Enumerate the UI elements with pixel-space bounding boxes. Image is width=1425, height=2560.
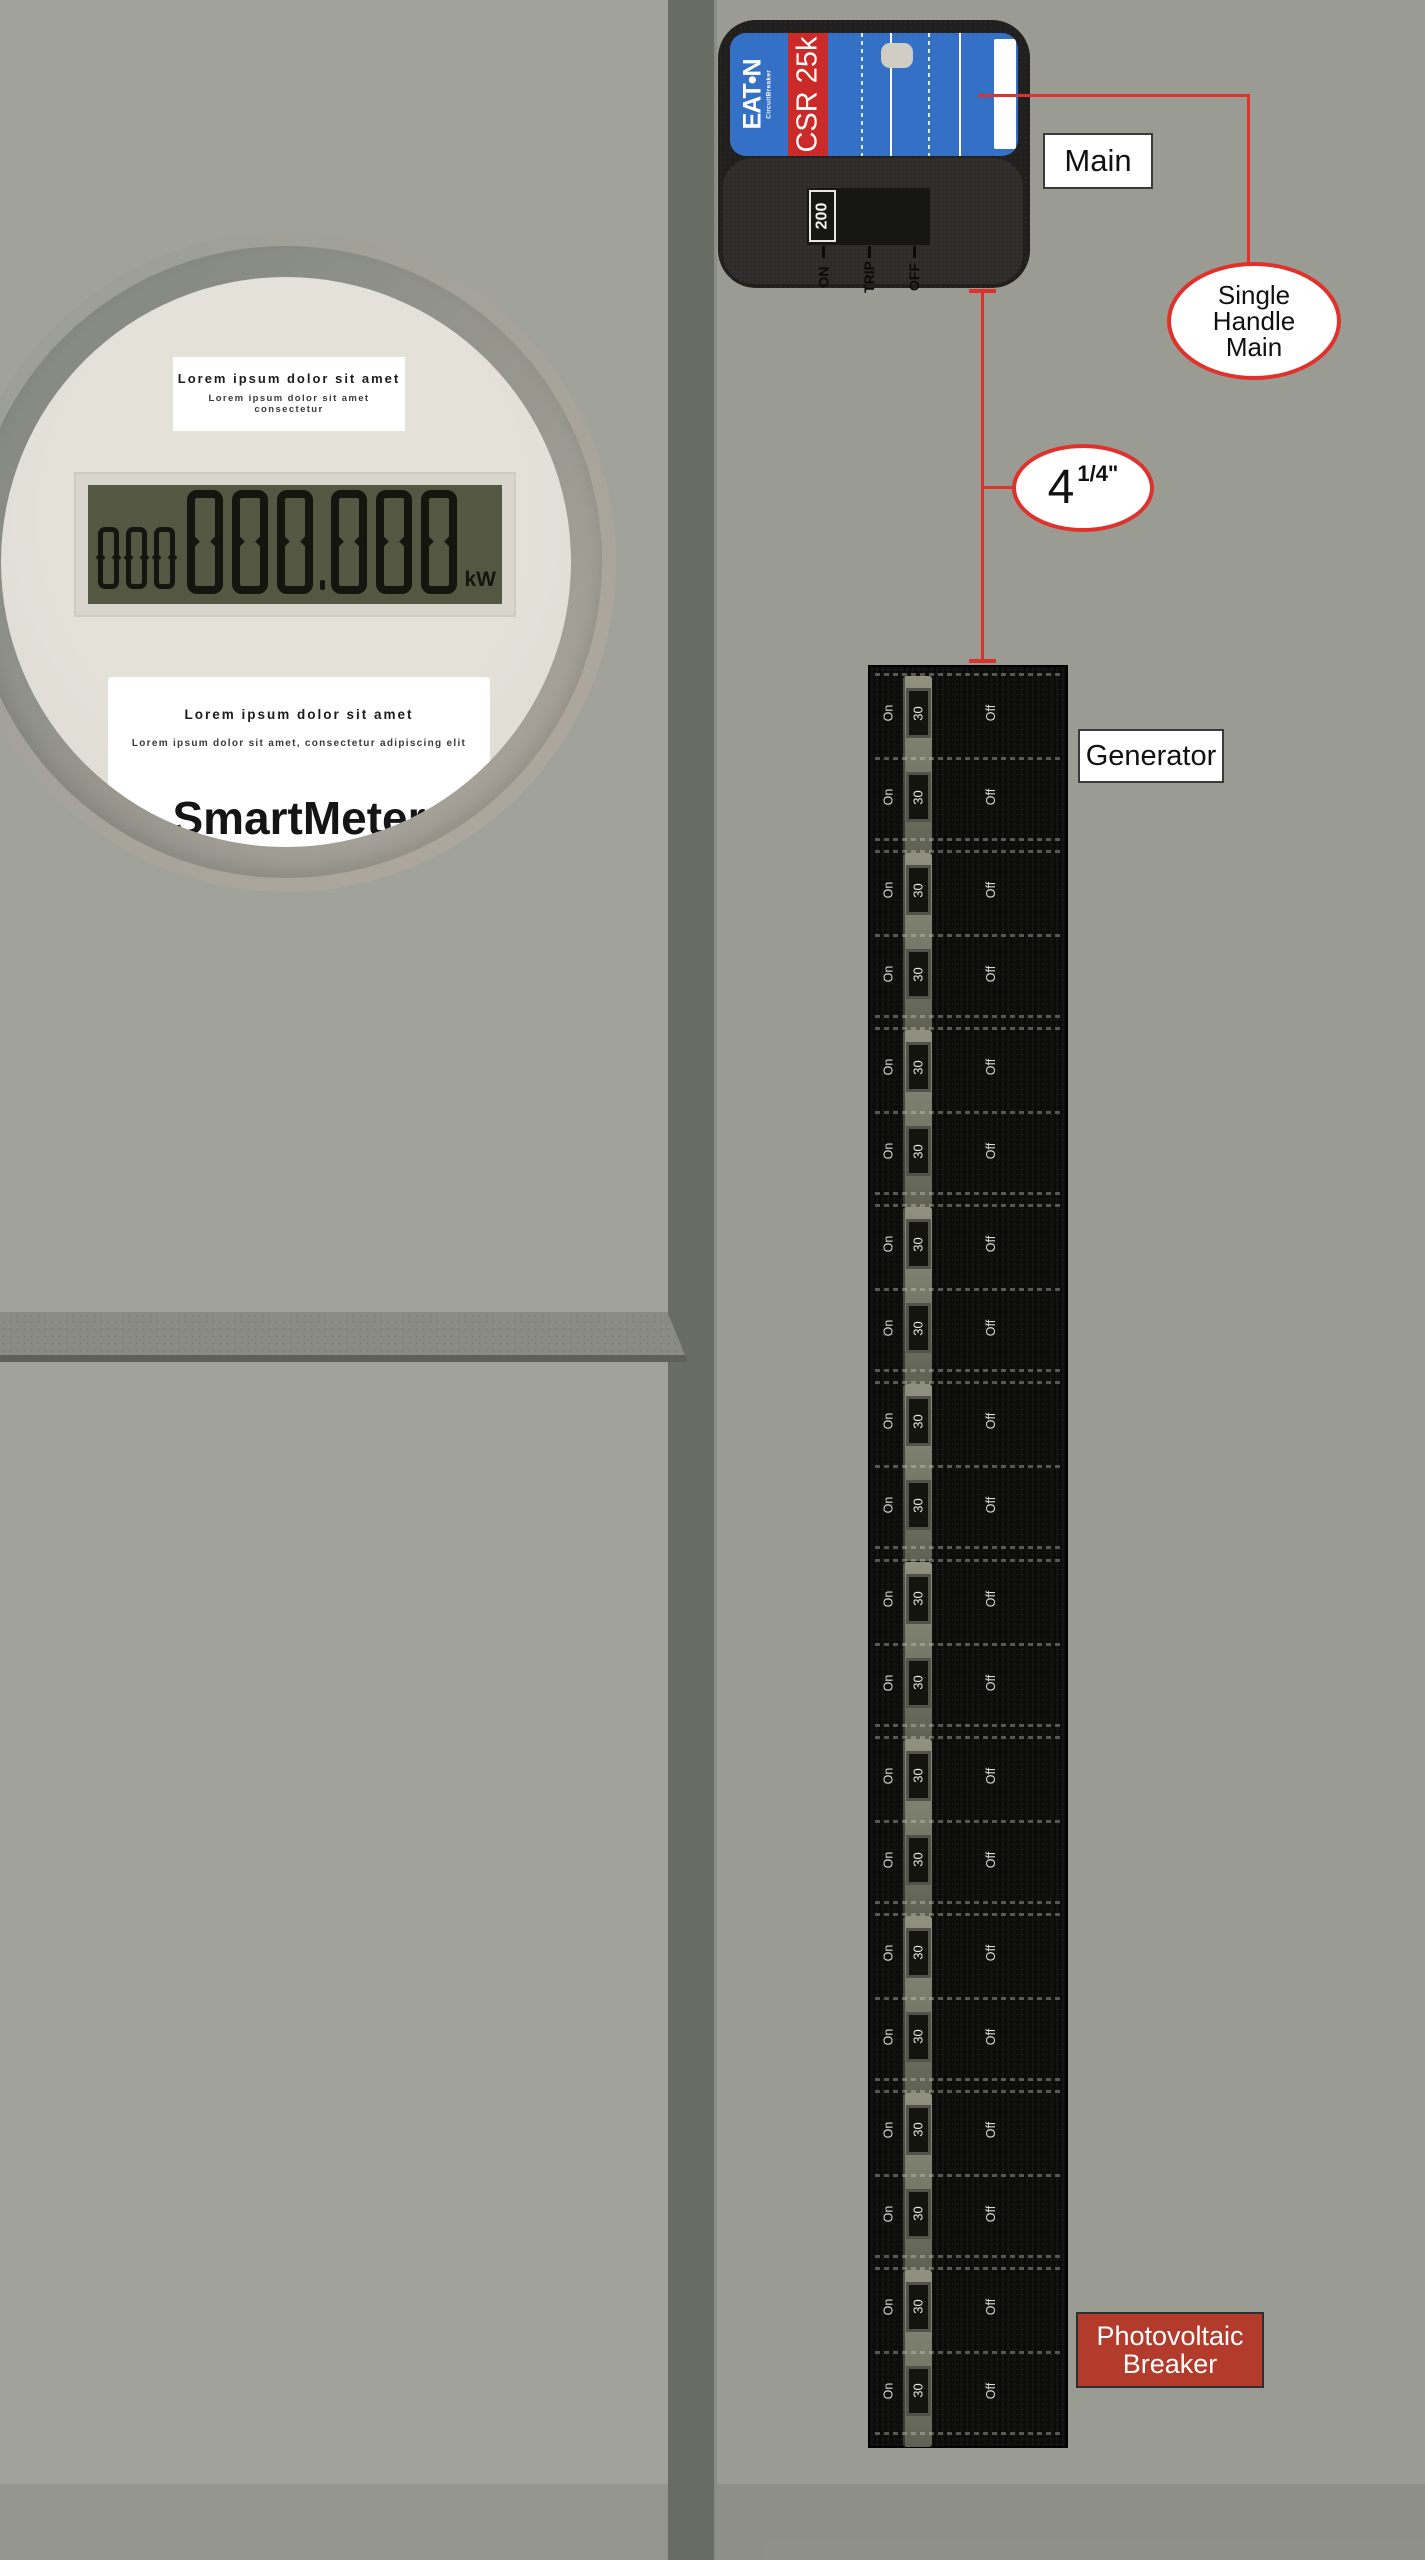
breaker-switch-handle[interactable]: 30 — [906, 2366, 931, 2416]
breaker-on-label: On — [878, 2267, 898, 2347]
dimension-value: 4 — [1048, 464, 1075, 512]
breaker-off-label-text: Off — [984, 1674, 998, 1690]
position-label-off: OFF — [902, 260, 926, 294]
breaker-switch-handle-text: 30 — [911, 1945, 926, 1959]
lcd-big-digit — [376, 490, 412, 594]
breaker-divider-line — [875, 1381, 1061, 1384]
breaker-off-label-text: Off — [984, 1767, 998, 1783]
breaker-switch-handle-text: 30 — [911, 1591, 926, 1605]
model-stripe: CSR 25k — [788, 33, 828, 156]
breaker-on-label: On — [878, 1111, 898, 1191]
breaker-on-label: On — [878, 1913, 898, 1993]
amp-rating-value: 200 — [814, 203, 832, 230]
meter-lcd-display: kW — [88, 485, 502, 604]
breaker-divider-line — [875, 673, 1061, 676]
breaker-off-label: Off — [976, 934, 1006, 1014]
breaker-on-label-text: On — [881, 1143, 895, 1160]
breaker-divider-line — [875, 757, 1061, 760]
breaker-row: On30Off — [872, 1820, 1064, 1900]
breaker-off-label: Off — [976, 1997, 1006, 2077]
breaker-switch-handle[interactable]: 30 — [906, 1126, 931, 1176]
breaker-switch-handle[interactable]: 30 — [906, 1396, 931, 1446]
breaker-off-label: Off — [976, 1913, 1006, 1993]
breaker-off-label: Off — [976, 1381, 1006, 1461]
dimension-line — [981, 292, 984, 663]
position-tick-on — [822, 246, 825, 258]
breaker-switch-handle[interactable]: 30 — [906, 1751, 931, 1801]
breaker-switch-handle[interactable]: 30 — [906, 1574, 931, 1624]
breaker-off-label-text: Off — [984, 1851, 998, 1867]
breaker-on-label: On — [878, 850, 898, 930]
breaker-on-label: On — [878, 1820, 898, 1900]
model-number: CSR 25k — [792, 36, 825, 152]
breaker-on-label-text: On — [881, 789, 895, 806]
breaker-off-label: Off — [976, 1736, 1006, 1816]
breaker-divider-line — [875, 1820, 1061, 1823]
breaker-row: On30Off — [872, 2351, 1064, 2431]
breaker-off-label: Off — [976, 1111, 1006, 1191]
breaker-group: On30OffOn30Off — [872, 1913, 1064, 2081]
breaker-off-label-text: Off — [984, 1059, 998, 1075]
single-handle-main-callout: Single Handle Main — [1167, 262, 1341, 380]
breaker-group: On30OffOn30Off — [872, 850, 1064, 1018]
breaker-group: On30OffOn30Off — [872, 1027, 1064, 1195]
lcd-big-digit — [331, 490, 367, 594]
breaker-off-label: Off — [976, 1288, 1006, 1368]
breaker-divider-line — [875, 1204, 1061, 1207]
breaker-divider-line — [875, 850, 1061, 853]
dimension-fraction: 1/4" — [1077, 461, 1118, 487]
breaker-switch-handle[interactable]: 30 — [906, 1303, 931, 1353]
breaker-switch-handle[interactable]: 30 — [906, 949, 931, 999]
breaker-row: On30Off — [872, 1559, 1064, 1639]
breaker-off-label-text: Off — [984, 1413, 998, 1429]
breaker-on-label-text: On — [881, 705, 895, 722]
breaker-on-label: On — [878, 673, 898, 753]
label-divider-line — [861, 33, 863, 156]
breaker-off-label: Off — [976, 1820, 1006, 1900]
breaker-off-label: Off — [976, 757, 1006, 837]
breaker-group: On30OffOn30Off — [872, 2267, 1064, 2435]
meter-bottom-label: Lorem ipsum dolor sit amet Lorem ipsum d… — [108, 677, 490, 847]
breaker-switch-handle[interactable]: 30 — [906, 772, 931, 822]
breaker-group: On30OffOn30Off — [872, 2090, 1064, 2258]
breaker-on-label-text: On — [881, 1674, 895, 1691]
breaker-off-label-text: Off — [984, 2122, 998, 2138]
dimension-connector — [983, 486, 1014, 489]
breaker-on-label: On — [878, 1204, 898, 1284]
breaker-switch-handle[interactable]: 30 — [906, 2189, 931, 2239]
breaker-off-label: Off — [976, 2090, 1006, 2170]
breaker-on-label-text: On — [881, 1059, 895, 1076]
breaker-on-label-text: On — [881, 1851, 895, 1868]
position-label-trip: TRIP — [857, 260, 881, 294]
breaker-on-label: On — [878, 2351, 898, 2431]
breaker-on-label-text: On — [881, 966, 895, 983]
callout-line-main-vertical — [1247, 94, 1250, 264]
breaker-off-label-text: Off — [984, 1590, 998, 1606]
breaker-on-label-text: On — [881, 2205, 895, 2222]
breaker-off-label: Off — [976, 1204, 1006, 1284]
breaker-off-label: Off — [976, 850, 1006, 930]
breaker-group-bottom-line — [875, 2432, 1061, 2435]
breaker-switch-handle-text: 30 — [911, 2029, 926, 2043]
breaker-off-label-text: Off — [984, 1944, 998, 1960]
breaker-switch-handle-text: 30 — [911, 1675, 926, 1689]
breaker-on-label-text: On — [881, 1320, 895, 1337]
position-label-on: ON — [811, 260, 835, 294]
breaker-off-label-text: Off — [984, 2206, 998, 2222]
dimension-callout: 4 1/4" — [1012, 444, 1154, 532]
breaker-off-label-text: Off — [984, 2383, 998, 2399]
breaker-divider-line — [875, 2174, 1061, 2177]
breaker-on-label-text: On — [881, 2299, 895, 2316]
breaker-group-bottom-line — [875, 1724, 1061, 1727]
breaker-switch-handle-text: 30 — [911, 1852, 926, 1866]
breaker-divider-line — [875, 1643, 1061, 1646]
breaker-switch-handle-text: 30 — [911, 967, 926, 981]
breaker-switch-handle[interactable]: 30 — [906, 2012, 931, 2062]
lcd-decimal-point — [320, 580, 326, 590]
breaker-group-bottom-line — [875, 1901, 1061, 1904]
breaker-switch-handle-text: 30 — [911, 2123, 926, 2137]
breaker-switch-handle-text: 30 — [911, 883, 926, 897]
breaker-switch-handle[interactable]: 30 — [906, 1480, 931, 1530]
breaker-switch-handle[interactable]: 30 — [906, 865, 931, 915]
breaker-on-label-text: On — [881, 2383, 895, 2400]
breaker-group-bottom-line — [875, 1369, 1061, 1372]
breaker-off-label: Off — [976, 2174, 1006, 2254]
breaker-off-label-text: Off — [984, 705, 998, 721]
breaker-off-label-text: Off — [984, 882, 998, 898]
lcd-big-digit — [232, 490, 268, 594]
breaker-on-label: On — [878, 2174, 898, 2254]
breaker-off-label: Off — [976, 673, 1006, 753]
breaker-off-label-text: Off — [984, 966, 998, 982]
breaker-row: On30Off — [872, 934, 1064, 1014]
lcd-big-digit — [277, 490, 313, 594]
breaker-on-label: On — [878, 1465, 898, 1545]
breaker-group-bottom-line — [875, 2078, 1061, 2081]
breaker-on-label: On — [878, 1643, 898, 1723]
breaker-on-label-text: On — [881, 2121, 895, 2138]
label-divider-line — [959, 33, 961, 156]
breaker-divider-line — [875, 1559, 1061, 1562]
meter-brand: SmartMeter — [108, 791, 490, 845]
breaker-row: On30Off — [872, 673, 1064, 753]
breaker-divider-line — [875, 2351, 1061, 2354]
breaker-switch-handle-text: 30 — [911, 2207, 926, 2221]
breaker-divider-line — [875, 1913, 1061, 1916]
dimension-tick-top — [969, 289, 996, 293]
breaker-row: On30Off — [872, 1381, 1064, 1461]
breaker-switch-handle-text: 30 — [911, 1321, 926, 1335]
breaker-switch-handle[interactable]: 30 — [906, 2282, 931, 2332]
breaker-row: On30Off — [872, 1997, 1064, 2077]
breaker-switch-handle[interactable]: 30 — [906, 1219, 931, 1269]
breaker-on-label-text: On — [881, 882, 895, 899]
breaker-off-label-text: Off — [984, 789, 998, 805]
breaker-switch-handle[interactable]: 30 — [906, 688, 931, 738]
breaker-row: On30Off — [872, 2174, 1064, 2254]
breaker-divider-line — [875, 2267, 1061, 2270]
eaton-logo: EAT•N CircuitBreaker — [730, 33, 784, 156]
breaker-divider-line — [875, 1736, 1061, 1739]
breaker-indicator-window — [881, 43, 913, 68]
breaker-off-label-text: Off — [984, 1143, 998, 1159]
breaker-row: On30Off — [872, 1465, 1064, 1545]
eaton-logo-text: EAT•N — [741, 60, 766, 130]
breaker-on-label: On — [878, 1559, 898, 1639]
photovoltaic-breaker-label: Photovoltaic Breaker — [1076, 2312, 1264, 2388]
position-tick-trip — [868, 246, 871, 258]
meter-lcd-frame: kW — [74, 472, 516, 617]
breaker-on-label-text: On — [881, 1767, 895, 1784]
lcd-small-digit — [126, 527, 147, 589]
wall-shelf-trim — [0, 1312, 688, 1362]
breaker-group: On30OffOn30Off — [872, 673, 1064, 841]
breaker-divider-line — [875, 1111, 1061, 1114]
generator-label: Generator — [1078, 729, 1224, 783]
breaker-row: On30Off — [872, 1027, 1064, 1107]
breaker-on-label: On — [878, 1027, 898, 1107]
breaker-divider-line — [875, 934, 1061, 937]
wall-corner-stripe — [668, 0, 717, 2560]
breaker-switch-handle-text: 30 — [911, 790, 926, 804]
breaker-row: On30Off — [872, 850, 1064, 930]
breaker-group: On30OffOn30Off — [872, 1381, 1064, 1549]
breaker-row: On30Off — [872, 1913, 1064, 1993]
meter-top-label-line1: Lorem ipsum dolor sit amet — [173, 371, 405, 386]
breaker-on-label: On — [878, 757, 898, 837]
breaker-off-label: Off — [976, 1643, 1006, 1723]
lcd-small-digit — [98, 527, 119, 589]
breaker-switch-handle[interactable]: 30 — [906, 1928, 931, 1978]
breaker-row: On30Off — [872, 2267, 1064, 2347]
breaker-switch-handle-text: 30 — [911, 1498, 926, 1512]
amp-rating-box: 200 — [809, 190, 836, 242]
breaker-switch-handle[interactable]: 30 — [906, 2105, 931, 2155]
breaker-switch-handle-text: 30 — [911, 2384, 926, 2398]
breaker-row: On30Off — [872, 757, 1064, 837]
breaker-on-label-text: On — [881, 1944, 895, 1961]
breaker-divider-line — [875, 1997, 1061, 2000]
breaker-divider-line — [875, 1288, 1061, 1291]
breaker-group-bottom-line — [875, 1015, 1061, 1018]
breaker-row: On30Off — [872, 1736, 1064, 1816]
breaker-on-label-text: On — [881, 1497, 895, 1514]
breaker-on-label: On — [878, 1381, 898, 1461]
breaker-divider-line — [875, 1027, 1061, 1030]
main-breaker: EAT•N CircuitBreaker CSR 25k 200 ON TRIP… — [718, 20, 1030, 288]
breaker-on-label-text: On — [881, 1236, 895, 1253]
meter-top-label: Lorem ipsum dolor sit amet Lorem ipsum d… — [173, 357, 405, 431]
breaker-row: On30Off — [872, 1204, 1064, 1284]
breaker-off-label-text: Off — [984, 2299, 998, 2315]
breaker-off-label: Off — [976, 2351, 1006, 2431]
breaker-row: On30Off — [872, 1111, 1064, 1191]
breaker-group-bottom-line — [875, 1192, 1061, 1195]
breaker-off-label-text: Off — [984, 1320, 998, 1336]
breaker-group: On30OffOn30Off — [872, 1736, 1064, 1904]
breaker-off-label: Off — [976, 1027, 1006, 1107]
breaker-off-label-text: Off — [984, 1497, 998, 1513]
breaker-on-label: On — [878, 934, 898, 1014]
label-divider-line — [928, 33, 930, 156]
breaker-row: On30Off — [872, 1288, 1064, 1368]
breaker-group: On30OffOn30Off — [872, 1559, 1064, 1727]
meter-top-label-line2: Lorem ipsum dolor sit amet consectetur — [173, 393, 405, 415]
breaker-switch-handle[interactable]: 30 — [906, 1835, 931, 1885]
breaker-group-bottom-line — [875, 1546, 1061, 1549]
dimension-tick-bottom — [969, 659, 996, 663]
meter-lcd-unit: kW — [464, 568, 496, 592]
breaker-switch-handle-text: 30 — [911, 2300, 926, 2314]
breaker-off-label: Off — [976, 2267, 1006, 2347]
breaker-switch-handle-text: 30 — [911, 1414, 926, 1428]
lcd-big-digit — [187, 490, 223, 594]
breaker-switch-handle-text: 30 — [911, 1060, 926, 1074]
lcd-small-digit — [154, 527, 175, 589]
breaker-on-label-text: On — [881, 2028, 895, 2045]
breaker-off-label: Off — [976, 1559, 1006, 1639]
meter-bottom-label-line1: Lorem ipsum dolor sit amet — [108, 707, 490, 722]
breaker-off-label-text: Off — [984, 2028, 998, 2044]
position-tick-off — [913, 246, 916, 258]
breaker-on-label: On — [878, 1736, 898, 1816]
breaker-on-label-text: On — [881, 1590, 895, 1607]
main-breaker-label-face: EAT•N CircuitBreaker CSR 25k — [730, 33, 1018, 156]
lcd-big-digit — [421, 490, 457, 594]
breaker-switch-handle-text: 30 — [911, 1144, 926, 1158]
breaker-switch-handle-text: 30 — [911, 706, 926, 720]
breaker-switch-handle[interactable]: 30 — [906, 1658, 931, 1708]
breaker-off-label-text: Off — [984, 1236, 998, 1252]
breaker-switch-handle-text: 30 — [911, 1768, 926, 1782]
breaker-group: On30OffOn30Off — [872, 1204, 1064, 1372]
callout-line-main-horizontal — [978, 94, 1250, 97]
breaker-on-label: On — [878, 1288, 898, 1368]
main-label: Main — [1043, 133, 1153, 189]
breaker-divider-line — [875, 2090, 1061, 2093]
eaton-logo-subtext: CircuitBreaker — [766, 60, 774, 130]
breaker-group-bottom-line — [875, 838, 1061, 841]
breaker-off-label: Off — [976, 1465, 1006, 1545]
meter-bottom-label-line2: Lorem ipsum dolor sit amet, consectetur … — [108, 738, 490, 749]
breaker-row: On30Off — [872, 2090, 1064, 2170]
generator-breaker-panel: On30OffOn30OffOn30OffOn30OffOn30OffOn30O… — [868, 665, 1068, 2448]
smart-meter: Lorem ipsum dolor sit amet Lorem ipsum d… — [1, 277, 571, 847]
breaker-group-bottom-line — [875, 2255, 1061, 2258]
breaker-row: On30Off — [872, 1643, 1064, 1723]
breaker-on-label: On — [878, 1997, 898, 2077]
breaker-switch-handle[interactable]: 30 — [906, 1042, 931, 1092]
breaker-on-label: On — [878, 2090, 898, 2170]
breaker-divider-line — [875, 1465, 1061, 1468]
breaker-on-label-text: On — [881, 1413, 895, 1430]
breaker-switch-handle-text: 30 — [911, 1237, 926, 1251]
